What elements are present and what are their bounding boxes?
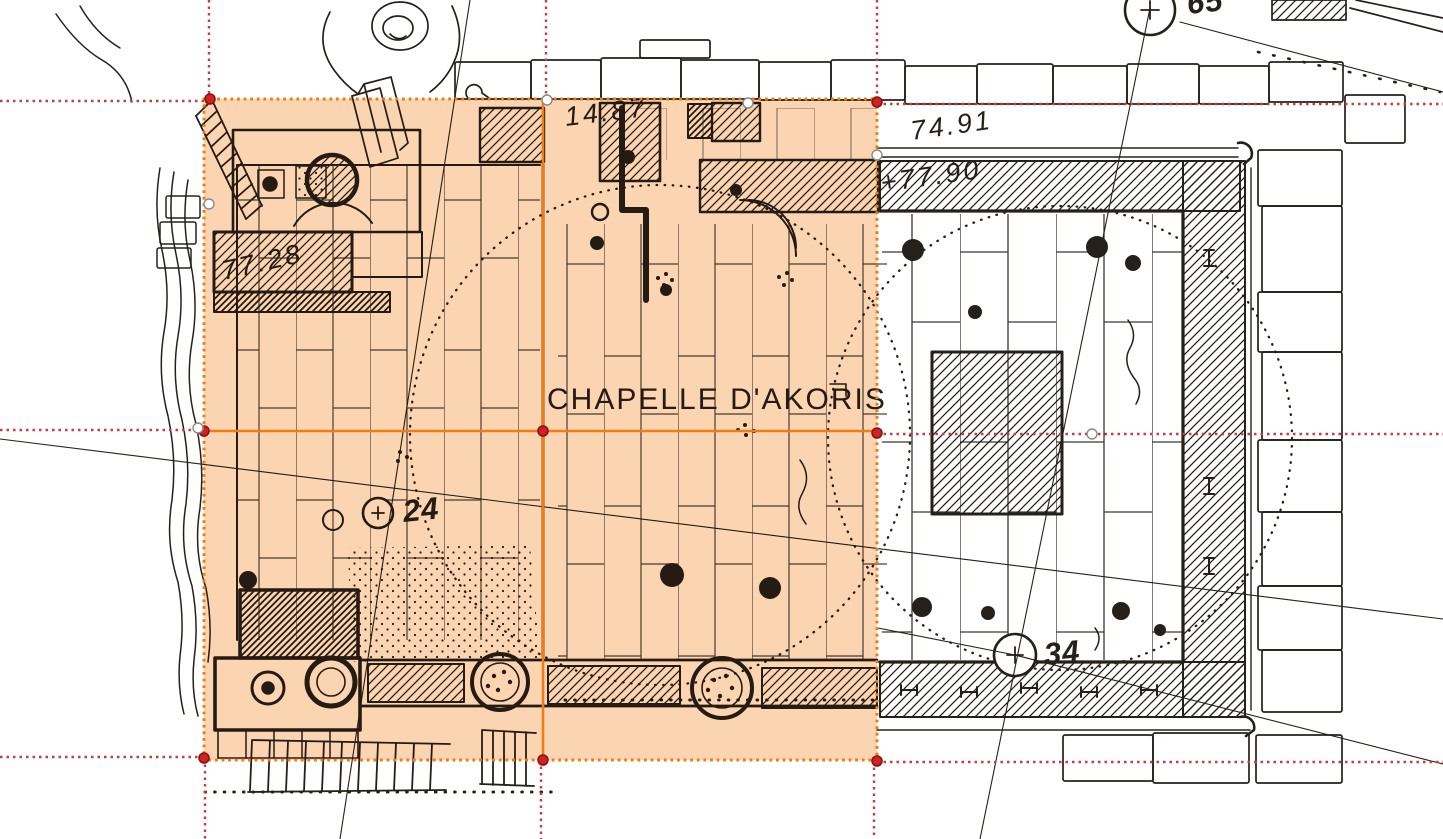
elevation-label-74-91: 74.91 xyxy=(909,105,995,146)
survey-point-34-label: 34 xyxy=(1042,633,1082,672)
selection-handle[interactable] xyxy=(204,199,214,209)
terrain-edge-lines xyxy=(56,6,210,716)
east-wall-hatched xyxy=(1183,161,1245,717)
grid-node[interactable] xyxy=(872,756,882,766)
selection-handle[interactable] xyxy=(743,98,753,108)
site-plan-canvas: { "labels": { "chapel_title": "CHAPELLE … xyxy=(0,0,1443,839)
grid-node[interactable] xyxy=(872,97,882,107)
selection-handle[interactable] xyxy=(193,423,203,433)
east-enclosure: 74.91 +77.90 34 xyxy=(828,105,1292,736)
grid-node[interactable] xyxy=(538,755,548,765)
sparse-dotted-line xyxy=(1258,52,1440,92)
selection-handle[interactable] xyxy=(1087,429,1097,439)
plan-drawing-svg: 24 77.28 14.87 CHAPELLE D'AKORIS xyxy=(0,0,1443,839)
survey-point-65-label: 65 xyxy=(1185,0,1225,21)
selection-handle[interactable] xyxy=(872,150,882,160)
inner-sanctuary-hatched xyxy=(932,352,1062,514)
selection-handle[interactable] xyxy=(542,95,552,105)
south-wall-hatched xyxy=(880,662,1245,717)
grid-node[interactable] xyxy=(205,94,215,104)
grid-node[interactable] xyxy=(872,428,882,438)
grid-node[interactable] xyxy=(199,753,209,763)
grid-node[interactable] xyxy=(538,426,548,436)
